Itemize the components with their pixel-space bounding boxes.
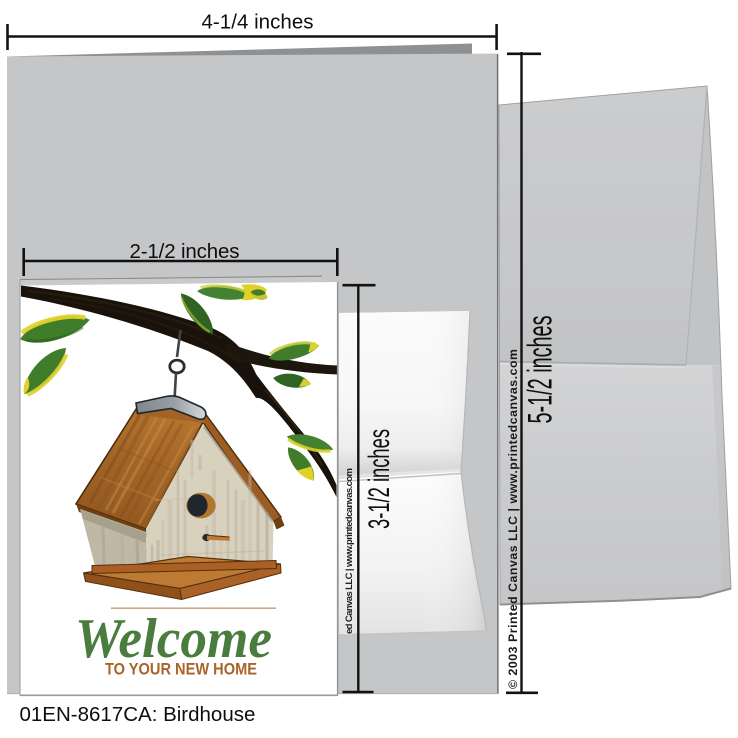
svg-text:4-1/4 inches: 4-1/4 inches bbox=[202, 11, 314, 34]
svg-text:© 2003 Printed Canvas LLC | ww: © 2003 Printed Canvas LLC | www.printedc… bbox=[506, 349, 520, 689]
svg-text:01EN-8617CA: Birdhouse: 01EN-8617CA: Birdhouse bbox=[20, 703, 256, 726]
svg-text:2-1/2 inches: 2-1/2 inches bbox=[130, 240, 240, 263]
svg-text:TO YOUR NEW HOME: TO YOUR NEW HOME bbox=[105, 660, 257, 679]
svg-text:3-1/2 inches: 3-1/2 inches bbox=[363, 429, 396, 529]
svg-text:ed Canvas LLC | www.printedcan: ed Canvas LLC | www.printedcanvas.com bbox=[344, 468, 355, 634]
svg-text:5-1/2 inches: 5-1/2 inches bbox=[522, 316, 560, 424]
